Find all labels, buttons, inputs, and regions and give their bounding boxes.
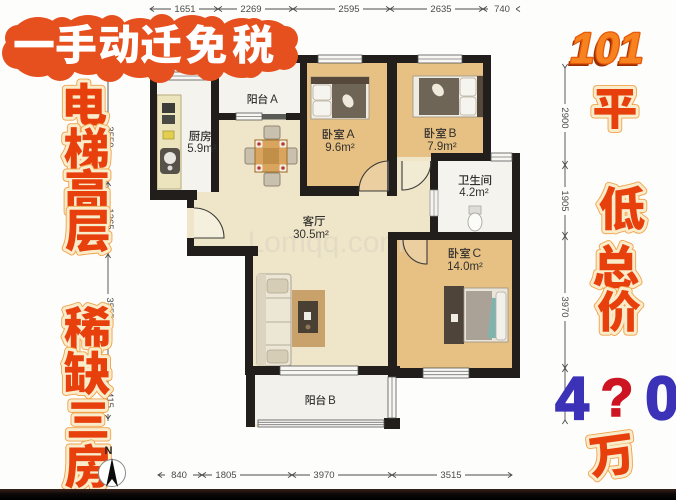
svg-text:840: 840 bbox=[171, 470, 187, 481]
svg-text:2595: 2595 bbox=[338, 4, 359, 15]
svg-text:101: 101 bbox=[570, 24, 643, 73]
svg-text:740: 740 bbox=[494, 4, 510, 15]
svg-text:1651: 1651 bbox=[174, 4, 195, 15]
svg-text:3970: 3970 bbox=[313, 470, 334, 481]
svg-text:2635: 2635 bbox=[430, 4, 451, 15]
svg-text:A: A bbox=[270, 94, 278, 106]
svg-text:N: N bbox=[105, 445, 113, 457]
svg-text:?: ? bbox=[601, 368, 634, 428]
svg-text:14.0m²: 14.0m² bbox=[447, 261, 483, 273]
svg-text:4: 4 bbox=[555, 365, 589, 432]
svg-text:2269: 2269 bbox=[240, 4, 261, 15]
svg-text:1805: 1805 bbox=[215, 470, 236, 481]
svg-text:7.9m²: 7.9m² bbox=[427, 141, 457, 153]
svg-text:B: B bbox=[328, 395, 336, 407]
svg-text:A: A bbox=[347, 127, 355, 141]
svg-text:C: C bbox=[473, 246, 482, 260]
svg-text:4.2m²: 4.2m² bbox=[459, 187, 489, 199]
svg-text:3515: 3515 bbox=[440, 470, 461, 481]
svg-text:0: 0 bbox=[645, 365, 676, 432]
svg-text:30.5m²: 30.5m² bbox=[293, 229, 329, 241]
svg-text:5.9m²: 5.9m² bbox=[187, 143, 217, 155]
svg-text:1905: 1905 bbox=[559, 190, 570, 211]
svg-text:2900: 2900 bbox=[559, 107, 570, 128]
svg-text:9.6m²: 9.6m² bbox=[325, 142, 355, 154]
svg-text:B: B bbox=[449, 126, 457, 140]
svg-text:3970: 3970 bbox=[559, 296, 570, 317]
